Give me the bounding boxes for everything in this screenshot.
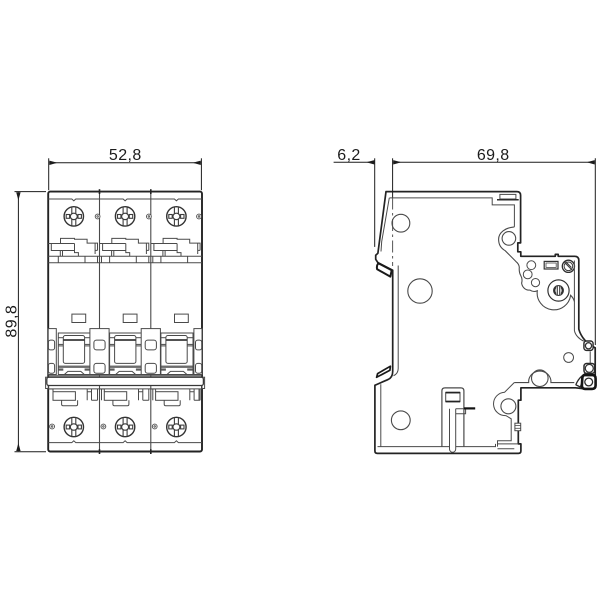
svg-text:6,2: 6,2 <box>337 147 360 164</box>
svg-text:52,8: 52,8 <box>109 147 142 164</box>
svg-text:69,8: 69,8 <box>477 147 510 164</box>
